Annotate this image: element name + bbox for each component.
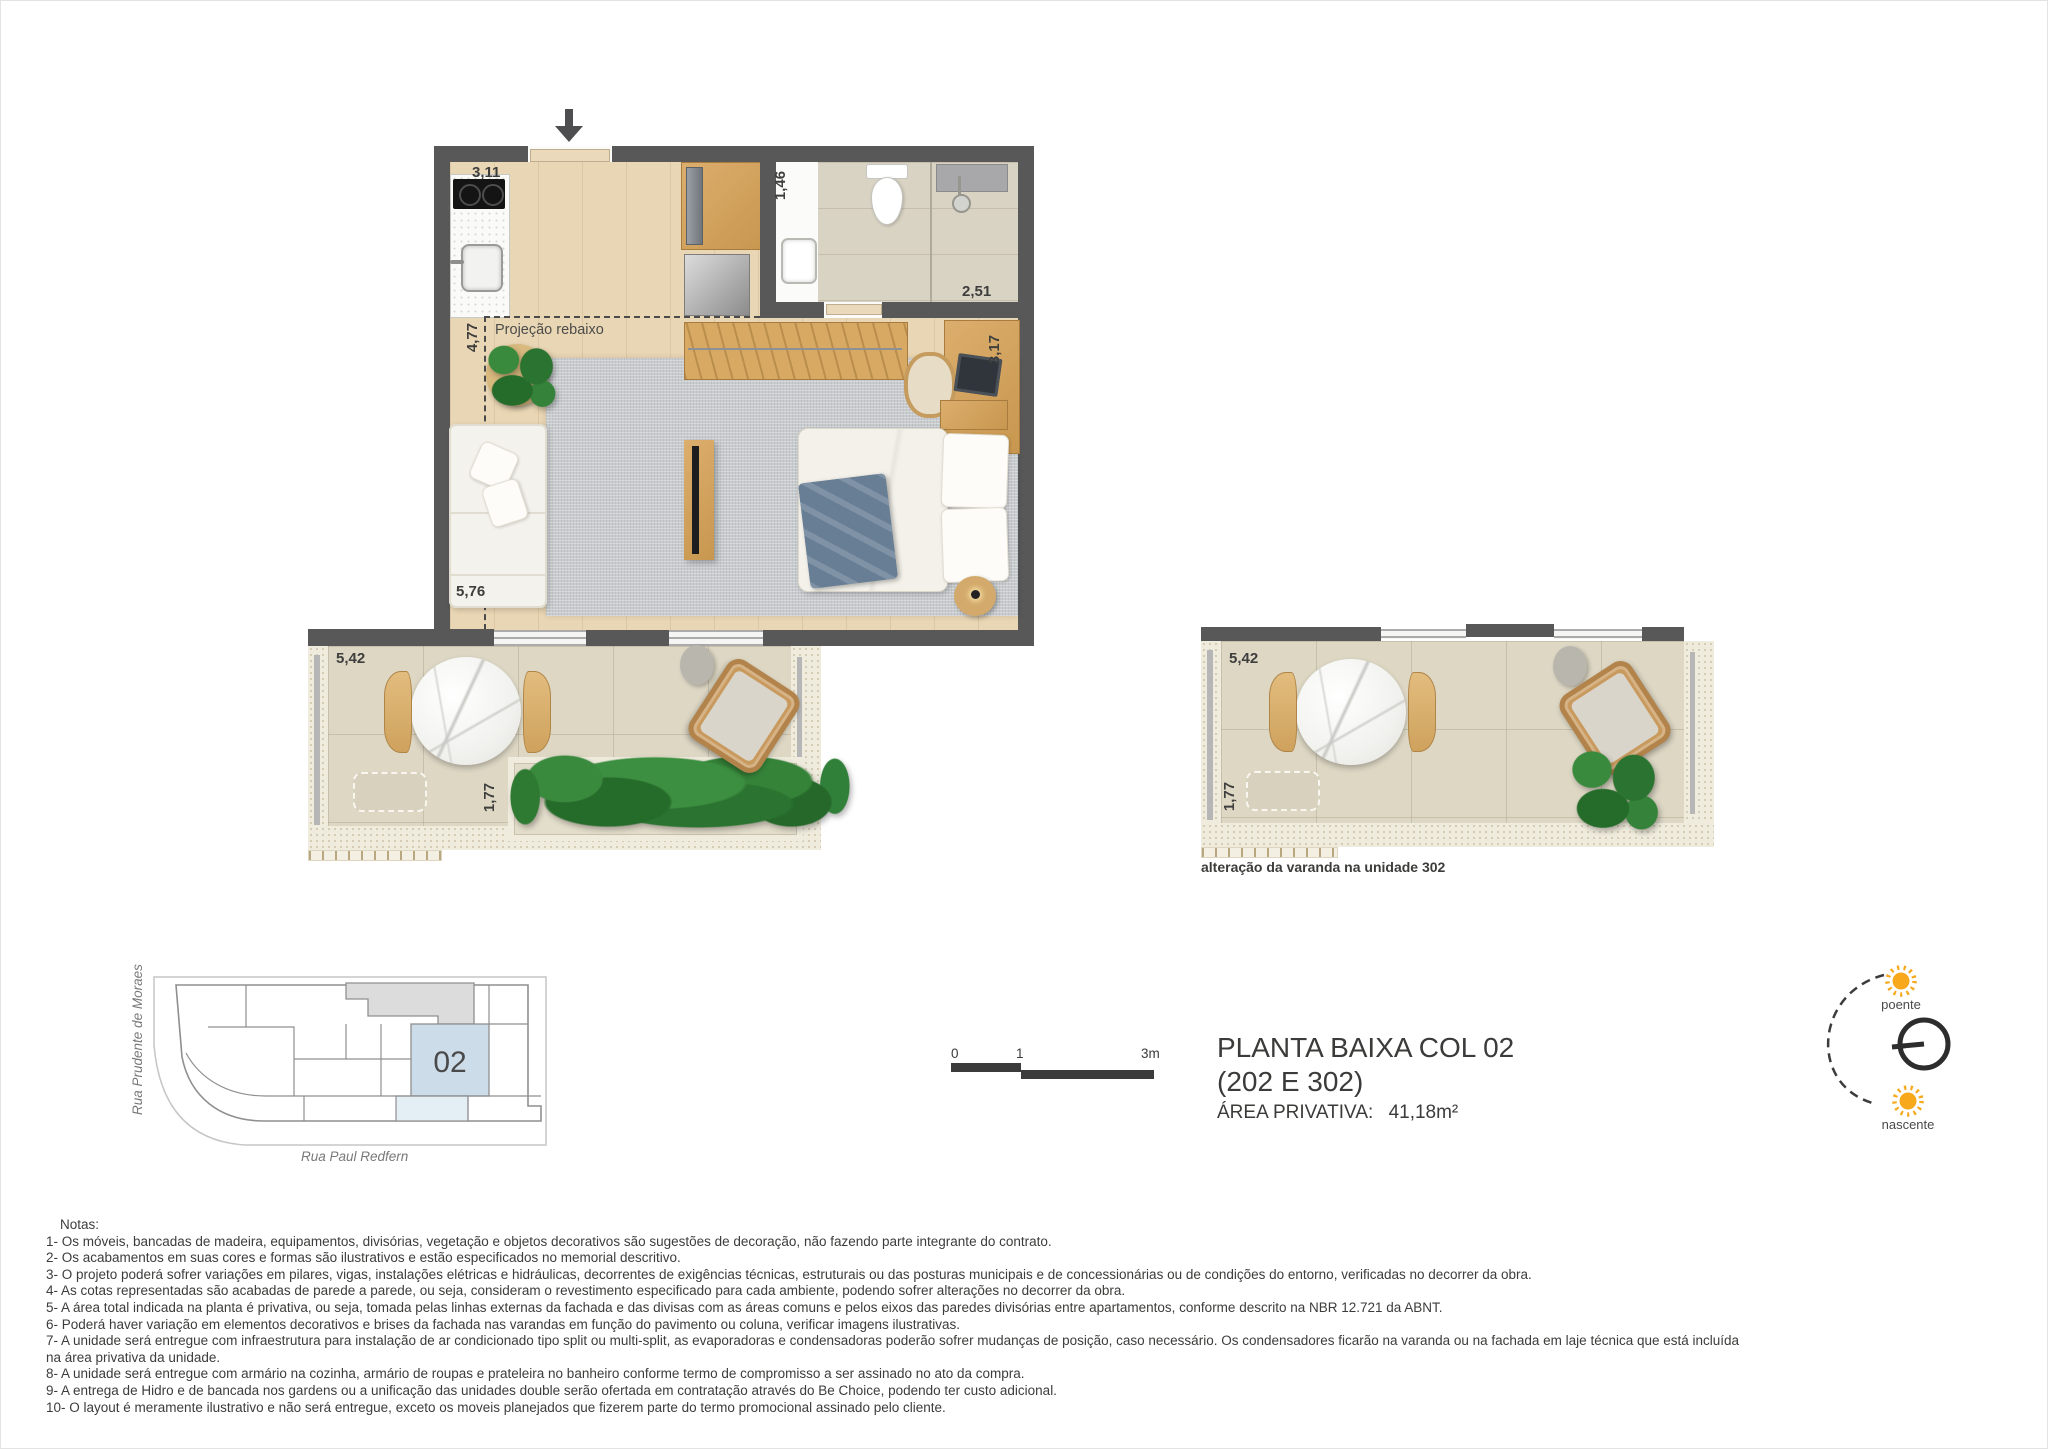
bath-door-leaf: [826, 304, 882, 315]
note-item: 1- Os móveis, bancadas de madeira, equip…: [46, 1234, 1746, 1251]
bathroom-wall-south: [760, 302, 1018, 318]
dining-chair-right: [523, 671, 551, 753]
varanda-alt: 5,42 1,77: [1201, 624, 1716, 859]
entry-door-leaf: [530, 149, 610, 162]
compass-label-west: poente: [1881, 997, 1921, 1012]
street-label-left: Rua Prudente de Moraes: [130, 964, 145, 1115]
bed-pillow: [941, 433, 1010, 509]
notes-heading: Notas:: [60, 1217, 1746, 1234]
varanda-main: 5,42 1,77: [308, 629, 823, 864]
unit-plan: Projeção rebaixo 3,11 1,46 2,51: [434, 146, 1034, 646]
shower-arm: [958, 176, 961, 196]
scale-segment-2: [1021, 1070, 1154, 1079]
bed-blanket: [798, 473, 898, 589]
nightstand-lamp: [971, 590, 980, 599]
balcony-wall: [1201, 627, 1381, 641]
appliance: [684, 254, 750, 316]
bed-pillow: [941, 507, 1010, 583]
balcony-border-right: [1684, 641, 1714, 843]
dim-balcony-width: 5,42: [1229, 651, 1258, 666]
kitchen-faucet: [450, 260, 464, 264]
fridge: [686, 167, 703, 245]
rebaixo-line-h: [484, 316, 760, 318]
compass: poente nascente: [1796, 951, 2016, 1146]
dining-chair-left: [384, 671, 412, 753]
balcony-tick-strip: [1201, 847, 1338, 858]
dim-balcony-width: 5,42: [336, 651, 365, 666]
entry-arrow: [565, 109, 573, 126]
dim-kitchen: 3,11: [472, 165, 500, 180]
note-item: 7- A unidade será entregue com infraestr…: [46, 1333, 1746, 1366]
keyplan-svg: 02: [116, 969, 586, 1179]
vent-window: [936, 164, 1008, 192]
keyplan: 02 Rua Prudente de Moraes Rua Paul Redfe…: [116, 969, 586, 1179]
north-indicator: [1892, 1020, 1948, 1068]
reserved-area-dashed: [353, 772, 427, 812]
note-item: 8- A unidade será entregue com armário n…: [46, 1366, 1746, 1383]
balcony-railing-left: [314, 655, 320, 825]
balcony-wall: [308, 629, 494, 646]
note-item: 6- Poderá haver variação em elementos de…: [46, 1317, 1746, 1334]
notes: Notas: 1- Os móveis, bancadas de madeira…: [46, 1217, 1746, 1416]
street-label-bottom: Rua Paul Redfern: [301, 1149, 408, 1164]
plant-foliage: [478, 336, 564, 416]
balcony-wall: [1642, 627, 1684, 641]
bath-sink: [781, 238, 817, 284]
balcony-plant: [1559, 739, 1669, 841]
scale-tick-3m: 3m: [1141, 1046, 1160, 1061]
note-item: 4- As cotas representadas são acabadas d…: [46, 1283, 1746, 1300]
bedside-bench: [940, 400, 1008, 430]
dining-chair-left: [1269, 672, 1297, 752]
floor-plan-sheet: Projeção rebaixo 3,11 1,46 2,51: [0, 0, 2048, 1449]
compass-label-east: nascente: [1882, 1117, 1935, 1132]
dim-desk: 3,17: [987, 335, 1002, 364]
tv: [692, 446, 699, 554]
sun-icon-east: [1895, 1088, 1922, 1115]
dim-left-upper: 4,77: [465, 323, 480, 352]
scale-segment-1: [951, 1063, 1021, 1072]
shower-screen: [930, 162, 932, 302]
wardrobe-rail: [688, 348, 902, 350]
reserved-area-dashed: [1246, 771, 1320, 811]
balcony-door-opening: [1554, 629, 1642, 639]
dim-left-lower: 5,76: [456, 584, 485, 599]
balcony-railing-left: [1207, 650, 1213, 820]
note-item: 3- O projeto poderá sofrer variações em …: [46, 1267, 1746, 1284]
balcony-tick-strip: [308, 850, 442, 861]
dim-shower: 2,51: [962, 284, 991, 299]
cooktop-burner: [459, 184, 481, 206]
scale-tick-1: 1: [1016, 1046, 1024, 1061]
note-item: 5- A área total indicada na planta é pri…: [46, 1300, 1746, 1317]
dining-chair-right: [1408, 672, 1436, 752]
dining-table: [411, 657, 521, 765]
plan-title: PLANTA BAIXA COL 02: [1217, 1031, 1514, 1065]
note-item: 2- Os acabamentos em suas cores e formas…: [46, 1250, 1746, 1267]
scale-tick-0: 0: [951, 1046, 959, 1061]
side-table: [1553, 646, 1587, 686]
side-table: [680, 645, 714, 685]
varanda-alt-caption: alteração da varanda na unidade 302: [1201, 859, 1445, 875]
dim-bath: 1,46: [773, 171, 788, 200]
sun-path-arc: [1828, 975, 1884, 1104]
balcony-wall: [1466, 624, 1554, 637]
tv-panel: [684, 440, 714, 560]
shower-head: [952, 194, 971, 213]
area-value: 41,18m²: [1389, 1102, 1459, 1123]
note-item: 9- A entrega de Hidro e de bancada nos g…: [46, 1383, 1746, 1400]
plan-subtitle: (202 E 302): [1217, 1065, 1514, 1099]
title-block: PLANTA BAIXA COL 02 (202 E 302) ÁREA PRI…: [1217, 1031, 1514, 1125]
entry-arrow-head: [555, 126, 583, 142]
scale-bar: 0 1 3m: [951, 1046, 1166, 1086]
balcony-railing-right: [1690, 652, 1695, 814]
dining-table: [1296, 659, 1406, 765]
area-label: ÁREA PRIVATIVA:: [1217, 1102, 1373, 1123]
cooktop-burner: [482, 184, 504, 206]
sofa-seam: [449, 574, 547, 576]
unit-02-lower: [396, 1096, 468, 1121]
keyplan-unit-label: 02: [433, 1046, 466, 1079]
sun-icon-west: [1888, 968, 1915, 995]
note-item: 10- O layout é meramente ilustrativo e n…: [46, 1400, 1746, 1417]
planter-plants: [500, 739, 860, 844]
dim-balcony-depth: 1,77: [482, 783, 497, 812]
balcony-door-opening: [1381, 629, 1466, 639]
wardrobe: [684, 322, 908, 380]
kitchen-sink: [461, 244, 503, 292]
dim-balcony-depth: 1,77: [1222, 782, 1237, 811]
